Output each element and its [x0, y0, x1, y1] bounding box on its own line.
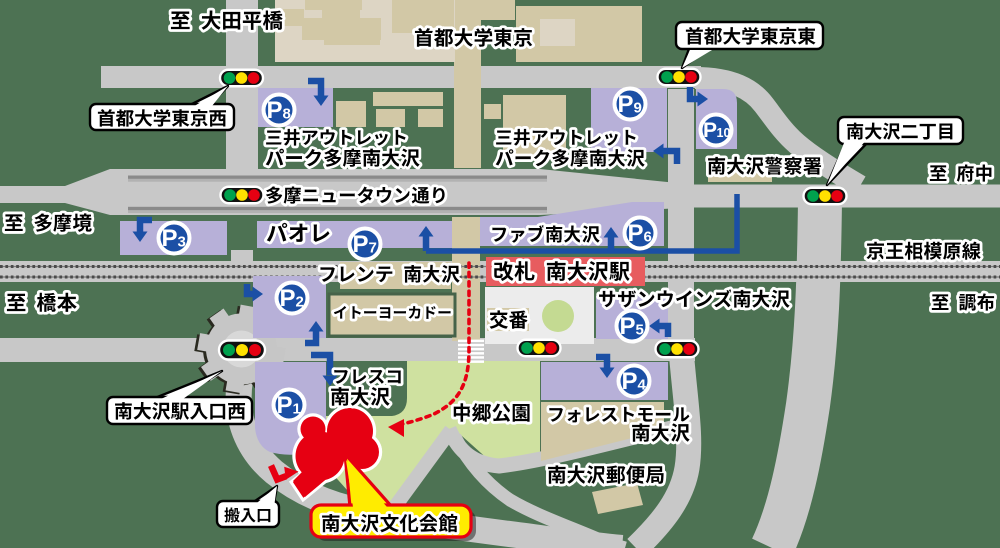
svg-text:10: 10: [717, 126, 731, 140]
svg-text:P: P: [353, 231, 369, 258]
svg-text:5: 5: [636, 322, 644, 339]
svg-text:6: 6: [644, 229, 652, 246]
svg-text:2: 2: [296, 294, 304, 311]
svg-text:9: 9: [634, 100, 642, 117]
svg-text:P: P: [162, 225, 178, 252]
svg-text:7: 7: [369, 240, 377, 257]
svg-text:8: 8: [283, 106, 291, 123]
svg-text:P: P: [618, 91, 634, 118]
svg-text:1: 1: [293, 401, 301, 418]
svg-text:4: 4: [638, 377, 647, 394]
svg-text:P: P: [280, 285, 296, 312]
svg-text:P: P: [620, 313, 636, 340]
svg-text:P: P: [622, 368, 638, 395]
svg-text:P: P: [703, 119, 717, 142]
svg-text:P: P: [628, 220, 644, 247]
svg-text:P: P: [277, 392, 293, 419]
svg-text:3: 3: [178, 234, 186, 251]
svg-text:P: P: [267, 97, 283, 124]
